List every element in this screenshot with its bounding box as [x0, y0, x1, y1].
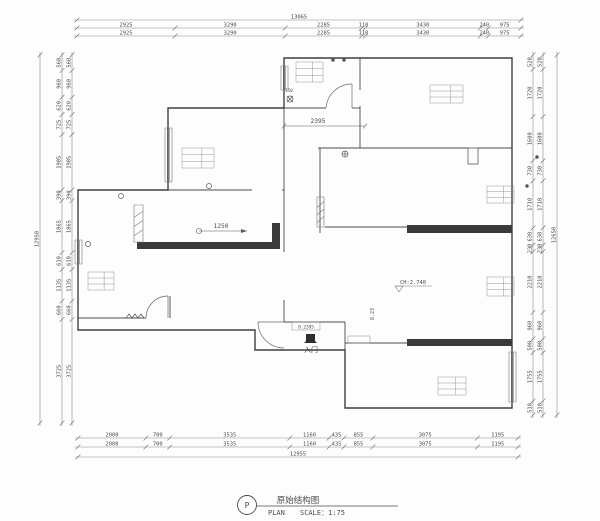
scale-label: SCALE：1:75 — [300, 509, 345, 517]
svg-text:1135: 1135 — [66, 279, 72, 292]
svg-text:1600: 1600 — [527, 132, 533, 145]
svg-text:390: 390 — [56, 190, 62, 200]
svg-text:960: 960 — [537, 321, 543, 331]
svg-text:610: 610 — [56, 256, 62, 266]
annotation-table — [438, 377, 466, 395]
bedroom-door-arc — [326, 84, 352, 108]
svg-text:520: 520 — [537, 57, 543, 67]
svg-text:700: 700 — [153, 441, 163, 447]
svg-text:2000: 2000 — [105, 432, 118, 438]
svg-text:700: 700 — [153, 432, 163, 438]
duct-hatch — [134, 205, 143, 242]
electrical-symbols — [86, 59, 539, 247]
svg-text:1195: 1195 — [491, 432, 504, 438]
svg-text:240: 240 — [479, 22, 489, 28]
svg-text:500: 500 — [527, 341, 533, 351]
svg-text:1865: 1865 — [66, 220, 72, 233]
svg-text:1160: 1160 — [303, 432, 316, 438]
svg-text:660: 660 — [56, 305, 62, 315]
svg-text:12650: 12650 — [551, 227, 557, 243]
svg-text:3725: 3725 — [66, 365, 72, 378]
entry-marker: 入门 — [304, 334, 318, 354]
annotation-table — [296, 62, 323, 82]
svg-text:725: 725 — [66, 120, 72, 130]
interior-walls — [78, 58, 512, 350]
duct-hatch — [317, 197, 324, 227]
svg-text:1710: 1710 — [537, 198, 543, 211]
svg-text:730: 730 — [537, 166, 543, 176]
svg-text:110: 110 — [359, 30, 369, 36]
svg-text:725: 725 — [56, 120, 62, 130]
svg-text:2925: 2925 — [119, 22, 132, 28]
svg-text:1195: 1195 — [491, 441, 504, 447]
svg-text:630: 630 — [537, 232, 543, 242]
svg-text:3535: 3535 — [223, 432, 236, 438]
ceiling-height-marker — [395, 286, 432, 292]
svg-text:730: 730 — [527, 166, 533, 176]
annotation-table — [182, 148, 214, 168]
svg-text:620: 620 — [56, 101, 62, 111]
annotation-table — [430, 85, 463, 103]
svg-text:855: 855 — [354, 432, 364, 438]
svg-text:1720: 1720 — [537, 87, 543, 100]
svg-text:12950: 12950 — [34, 231, 40, 247]
svg-text:1710: 1710 — [527, 198, 533, 211]
vent-label: 150 — [285, 88, 293, 93]
annotation-table — [88, 272, 114, 290]
annotation-table — [487, 277, 514, 296]
svg-text:975: 975 — [500, 22, 510, 28]
plan-word: PLAN — [268, 509, 285, 517]
svg-text:630: 630 — [527, 232, 533, 242]
svg-text:1985: 1985 — [56, 156, 62, 169]
svg-text:3075: 3075 — [419, 432, 432, 438]
svg-text:390: 390 — [66, 190, 72, 200]
living-offset-dim: 1250 — [214, 223, 229, 230]
svg-text:3430: 3430 — [416, 30, 429, 36]
plan-symbol: P — [245, 501, 250, 510]
entry-door-arc — [258, 322, 284, 348]
svg-text:3075: 3075 — [419, 441, 432, 447]
svg-text:960: 960 — [66, 79, 72, 89]
windows-and-doors — [75, 66, 516, 402]
svg-text:13065: 13065 — [291, 14, 307, 20]
entry-label: 入门 — [304, 345, 318, 354]
threshold-zigzag — [126, 314, 144, 318]
svg-text:1720: 1720 — [527, 87, 533, 100]
svg-text:510: 510 — [537, 403, 543, 413]
svg-text:3290: 3290 — [224, 22, 237, 28]
svg-text:1985: 1985 — [66, 156, 72, 169]
drawing-title: 原始结构图 — [277, 495, 320, 506]
svg-text:435: 435 — [332, 441, 342, 447]
title-block: P 原始结构图 PLAN SCALE：1:75 — [238, 495, 399, 517]
svg-text:3430: 3430 — [416, 22, 429, 28]
floorplan-sheet: 2925329022851103430240975292532902285110… — [0, 0, 600, 521]
entry-icon — [306, 334, 315, 341]
svg-text:500: 500 — [537, 341, 543, 351]
floor-level-label: 8.23 — [370, 308, 376, 320]
svg-text:610: 610 — [66, 256, 72, 266]
svg-text:2285: 2285 — [317, 22, 330, 28]
svg-text:1600: 1600 — [537, 132, 543, 145]
svg-text:560: 560 — [56, 58, 62, 68]
svg-text:3290: 3290 — [224, 30, 237, 36]
svg-text:960: 960 — [56, 79, 62, 89]
svg-text:975: 975 — [500, 30, 510, 36]
ceiling-height-label: CH:2.740 — [400, 280, 426, 286]
svg-text:1755: 1755 — [527, 370, 533, 383]
svg-text:2925: 2925 — [119, 30, 132, 36]
svg-text:3725: 3725 — [56, 365, 62, 378]
svg-text:510: 510 — [527, 403, 533, 413]
svg-text:660: 660 — [66, 305, 72, 315]
hall-door-arc — [146, 296, 168, 318]
svg-text:1865: 1865 — [56, 220, 62, 233]
annotation-table — [487, 186, 514, 203]
svg-text:960: 960 — [527, 321, 533, 331]
svg-text:240: 240 — [479, 30, 489, 36]
inner-dimensions — [196, 124, 367, 234]
svg-text:520: 520 — [527, 57, 533, 67]
svg-text:12955: 12955 — [290, 451, 306, 457]
svg-text:110: 110 — [359, 22, 369, 28]
svg-text:560: 560 — [66, 58, 72, 68]
svg-text:1160: 1160 — [303, 441, 316, 447]
hall-width-dim: 2395 — [311, 118, 326, 125]
svg-text:435: 435 — [332, 432, 342, 438]
svg-text:1755: 1755 — [537, 370, 543, 383]
svg-text:2210: 2210 — [537, 276, 543, 289]
svg-text:1135: 1135 — [56, 279, 62, 292]
svg-text:3535: 3535 — [223, 441, 236, 447]
svg-text:2210: 2210 — [527, 276, 533, 289]
svg-text:2285: 2285 — [317, 30, 330, 36]
svg-text:2000: 2000 — [105, 441, 118, 447]
svg-text:855: 855 — [354, 441, 364, 447]
sill-level-label: 0.2395 — [298, 325, 314, 331]
dimension-lines: 2925329022851103430240975292532902285110… — [34, 14, 559, 459]
svg-text:620: 620 — [66, 101, 72, 111]
shear-walls — [137, 223, 512, 346]
